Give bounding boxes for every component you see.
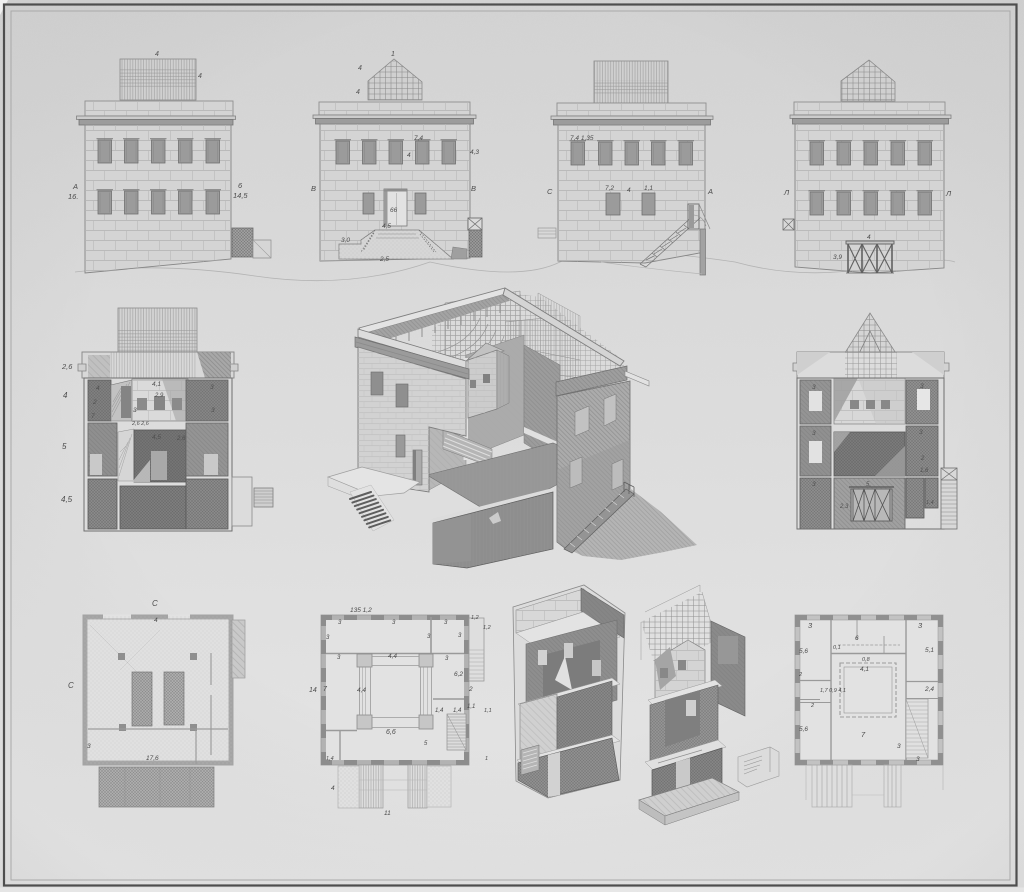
svg-text:2,9: 2,9 [154, 393, 164, 399]
svg-text:7,2: 7,2 [605, 185, 614, 192]
svg-text:3: 3 [812, 481, 816, 488]
svg-text:1,1: 1,1 [644, 185, 653, 192]
svg-text:4: 4 [356, 89, 360, 96]
svg-text:0,8: 0,8 [862, 657, 871, 663]
svg-text:4: 4 [867, 234, 871, 241]
svg-text:4: 4 [198, 73, 202, 80]
svg-text:1,4: 1,4 [326, 756, 334, 762]
svg-text:2: 2 [92, 399, 97, 406]
svg-text:2,5: 2,5 [379, 256, 389, 263]
svg-text:3: 3 [920, 383, 924, 390]
svg-text:7,4 1,35: 7,4 1,35 [570, 135, 594, 142]
svg-text:3,9: 3,9 [833, 254, 842, 261]
svg-text:5,6: 5,6 [799, 726, 808, 733]
svg-text:2: 2 [798, 672, 802, 678]
svg-text:3: 3 [211, 407, 215, 414]
svg-text:3: 3 [916, 756, 920, 763]
svg-text:C: C [68, 681, 74, 690]
svg-text:6,6: 6,6 [386, 729, 396, 736]
svg-text:1,7 0,9 4,1: 1,7 0,9 4,1 [820, 688, 846, 694]
svg-text:4,4: 4,4 [357, 687, 366, 694]
svg-text:2,6 2,6: 2,6 2,6 [131, 421, 150, 427]
svg-text:16.: 16. [68, 192, 78, 201]
svg-text:2: 2 [810, 703, 814, 709]
svg-text:B: B [471, 184, 476, 193]
svg-text:B: B [311, 184, 316, 193]
svg-text:3: 3 [133, 407, 137, 414]
svg-text:3: 3 [919, 429, 923, 436]
svg-text:1: 1 [391, 51, 395, 58]
svg-text:2: 2 [468, 686, 473, 693]
svg-text:4: 4 [96, 385, 100, 392]
svg-text:Л: Л [945, 189, 952, 198]
svg-text:2,6: 2,6 [176, 436, 186, 442]
svg-text:6,2: 6,2 [454, 671, 463, 678]
svg-text:2,6: 2,6 [61, 362, 73, 371]
svg-text:1,6: 1,6 [920, 468, 929, 474]
svg-text:A: A [707, 187, 713, 196]
svg-text:17,6: 17,6 [146, 755, 159, 762]
svg-text:4: 4 [331, 785, 335, 792]
svg-text:4,5: 4,5 [61, 495, 73, 504]
svg-text:2: 2 [920, 456, 925, 462]
svg-text:1,1: 1,1 [467, 704, 475, 710]
svg-text:3: 3 [210, 384, 214, 391]
svg-text:4,5: 4,5 [152, 434, 161, 441]
svg-text:3,0: 3,0 [341, 237, 350, 244]
svg-text:66: 66 [390, 207, 398, 214]
svg-text:4,4: 4,4 [388, 653, 397, 660]
svg-text:4: 4 [407, 152, 411, 159]
svg-text:4,3: 4,3 [470, 149, 479, 156]
svg-text:0,1: 0,1 [833, 645, 841, 651]
svg-text:4,1: 4,1 [152, 381, 161, 388]
svg-text:1,2: 1,2 [471, 615, 479, 621]
svg-text:1: 1 [485, 756, 488, 762]
svg-text:4,5: 4,5 [382, 223, 391, 230]
svg-text:3: 3 [897, 743, 901, 750]
svg-text:5,: 5, [866, 482, 871, 488]
svg-text:A: A [72, 182, 78, 191]
svg-text:2,3: 2,3 [839, 504, 849, 510]
svg-text:1,4: 1,4 [435, 708, 444, 714]
svg-text:4,1: 4,1 [860, 666, 869, 673]
svg-text:7,4: 7,4 [414, 135, 423, 142]
svg-text:7: 7 [91, 413, 95, 420]
svg-text:14: 14 [309, 687, 317, 694]
svg-text:5,1: 5,1 [925, 647, 934, 654]
svg-text:Л: Л [783, 188, 790, 197]
svg-text:1,4: 1,4 [926, 500, 934, 506]
svg-text:5: 5 [62, 442, 67, 451]
svg-text:C: C [547, 187, 553, 196]
svg-text:4: 4 [154, 617, 158, 624]
svg-text:C: C [152, 599, 158, 608]
svg-text:4: 4 [63, 391, 68, 400]
svg-text:3: 3 [812, 384, 816, 391]
svg-text:2,4: 2,4 [924, 686, 934, 693]
svg-text:11: 11 [384, 810, 391, 817]
svg-text:1,2: 1,2 [483, 625, 491, 631]
svg-text:14,5: 14,5 [233, 191, 248, 200]
svg-text:1,4: 1,4 [453, 708, 462, 714]
svg-text:3: 3 [87, 743, 91, 750]
svg-text:135 1,2: 135 1,2 [350, 607, 372, 614]
svg-text:6: 6 [855, 635, 859, 642]
svg-text:4: 4 [627, 187, 631, 194]
svg-text:4: 4 [358, 65, 362, 72]
svg-text:3: 3 [812, 430, 816, 437]
svg-text:4: 4 [155, 51, 159, 58]
svg-text:1,1: 1,1 [484, 708, 492, 714]
svg-text:5,6: 5,6 [799, 648, 808, 655]
